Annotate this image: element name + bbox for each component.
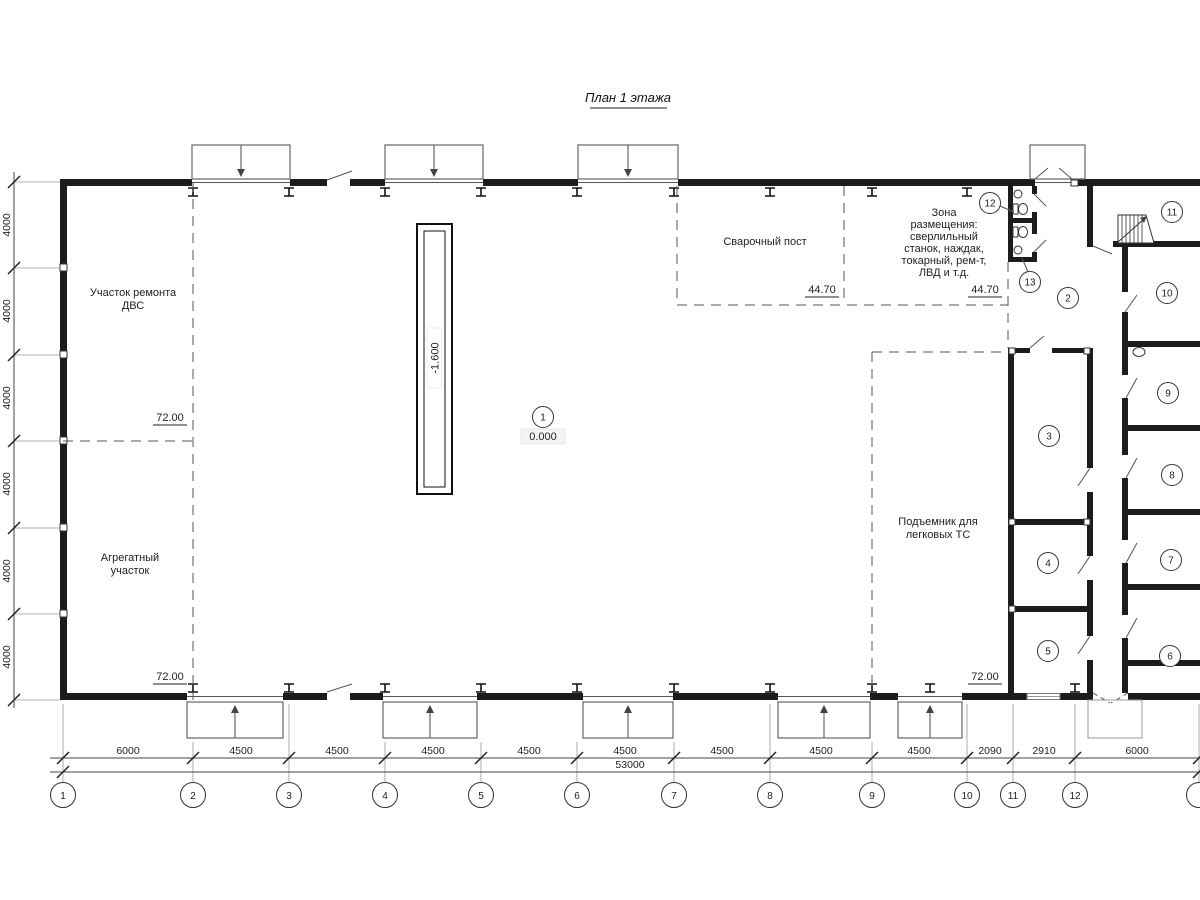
elevation-labels: 72.00 72.00 72.00 44.70 44.70 xyxy=(153,284,1002,684)
room-label-dvs2: ДВС xyxy=(122,300,144,312)
dim-left: 4000 xyxy=(1,386,13,410)
grid-extension-lines xyxy=(63,704,1199,783)
left-dimensions: 4000 4000 4000 4000 4000 4000 xyxy=(1,172,60,708)
dim-bottom: 4500 xyxy=(613,745,637,757)
dim-left: 4000 xyxy=(1,213,13,237)
room-mark: 5 xyxy=(1038,641,1059,662)
columns-top xyxy=(188,188,972,196)
grid-bubble: 4 xyxy=(373,783,398,808)
room-mark: 13 xyxy=(1020,258,1041,293)
elevation-4470-zone: 44.70 xyxy=(971,284,999,296)
svg-text:2: 2 xyxy=(190,791,196,802)
svg-text:12: 12 xyxy=(984,199,996,210)
dim-bottom: 6000 xyxy=(116,745,140,757)
dim-left: 4000 xyxy=(1,472,13,496)
dim-bottom: 4500 xyxy=(421,745,445,757)
stairs xyxy=(1118,215,1154,243)
floor-plan-sheet: План 1 этажа xyxy=(0,0,1200,900)
svg-text:7: 7 xyxy=(1168,556,1174,567)
svg-text:3: 3 xyxy=(286,791,292,802)
elevation-72-left-top: 72.00 xyxy=(156,412,184,424)
room-label-lift2: легковых ТС xyxy=(906,529,971,541)
svg-text:10: 10 xyxy=(1161,289,1173,300)
dim-left: 4000 xyxy=(1,645,13,669)
grid-bubble: 11 xyxy=(1001,783,1026,808)
svg-text:2: 2 xyxy=(1065,294,1071,305)
svg-text:4: 4 xyxy=(382,791,388,802)
room-mark: 6 xyxy=(1160,646,1181,667)
vestibule xyxy=(1030,145,1085,179)
dim-bottom: 4500 xyxy=(710,745,734,757)
dim-bottom: 4500 xyxy=(517,745,541,757)
svg-text:4: 4 xyxy=(1045,559,1051,570)
sink-icon xyxy=(1014,190,1022,198)
grid-bubble: 10 xyxy=(955,783,980,808)
interior-walls xyxy=(1008,186,1200,693)
room-label-weld: Сварочный пост xyxy=(723,236,806,248)
gate-symbols-bottom xyxy=(187,702,962,738)
floor-mark: 1 0.000 xyxy=(521,407,565,445)
svg-text:3: 3 xyxy=(1046,432,1052,443)
room-label-zone1: Зона xyxy=(932,207,958,219)
room-mark: 10 xyxy=(1157,283,1178,304)
room-label-dvs: Участок ремонта xyxy=(90,287,177,299)
dim-bottom: 2910 xyxy=(1032,745,1056,757)
room-label-zone5: токарный, рем-т, xyxy=(902,255,987,267)
dim-labels: 6000 4500 4500 4500 4500 4500 4500 4500 … xyxy=(116,745,1149,757)
grid-bubble: 1 xyxy=(51,783,76,808)
toilet-icon xyxy=(1013,204,1028,215)
svg-text:7: 7 xyxy=(671,791,677,802)
dim-bottom: 4500 xyxy=(325,745,349,757)
floor-plan-drawing: План 1 этажа xyxy=(0,0,1200,900)
svg-text:5: 5 xyxy=(1045,647,1051,658)
room-mark: 9 xyxy=(1158,383,1179,404)
dim-bottom: 2090 xyxy=(978,745,1002,757)
room-mark: 7 xyxy=(1161,550,1182,571)
grid-bubble-partial xyxy=(1187,783,1200,808)
dim-left: 4000 xyxy=(1,299,13,323)
window xyxy=(1027,694,1060,700)
inspection-pit: -1.600 xyxy=(417,224,452,494)
interior-doors xyxy=(1030,194,1137,654)
grid-bubble: 9 xyxy=(860,783,885,808)
room-label-zone3: сверлильный xyxy=(910,231,978,243)
grid-bubble: 7 xyxy=(662,783,687,808)
dim-left: 4000 xyxy=(1,559,13,583)
dim-bottom: 6000 xyxy=(1125,745,1149,757)
dim-bottom: 4500 xyxy=(907,745,931,757)
room-labels: Участок ремонта ДВС Агрегатный участок С… xyxy=(90,207,987,577)
elevation-4470-weld: 44.70 xyxy=(808,284,836,296)
elevation-72-left-bottom: 72.00 xyxy=(156,671,184,683)
svg-text:9: 9 xyxy=(869,791,875,802)
svg-text:8: 8 xyxy=(767,791,773,802)
svg-text:12: 12 xyxy=(1069,791,1081,802)
svg-text:5: 5 xyxy=(478,791,484,802)
svg-text:11: 11 xyxy=(1167,208,1178,219)
toilet-icon xyxy=(1013,227,1028,238)
room-mark: 8 xyxy=(1162,465,1183,486)
room-label-zone6: ЛВД и т.д. xyxy=(919,267,969,279)
exit-porch xyxy=(1088,700,1142,738)
dim-total: 53000 xyxy=(615,759,644,771)
dim-bottom: 4500 xyxy=(229,745,253,757)
sink-icon xyxy=(1014,246,1022,254)
grid-bubble: 6 xyxy=(565,783,590,808)
grid-bubble: 12 xyxy=(1063,783,1088,808)
grid-bubble: 8 xyxy=(758,783,783,808)
svg-text:9: 9 xyxy=(1165,389,1171,400)
elevation-0000: 0.000 xyxy=(529,431,557,443)
svg-text:8: 8 xyxy=(1169,471,1175,482)
pit-elevation-label: -1.600 xyxy=(430,342,442,373)
room-mark: 2 xyxy=(1058,288,1079,309)
sink-icon xyxy=(1133,348,1145,357)
room-mark: 3 xyxy=(1039,426,1060,447)
columns-bottom xyxy=(188,684,1080,692)
grid-bubble: 2 xyxy=(181,783,206,808)
grid-bubble: 5 xyxy=(469,783,494,808)
svg-text:6: 6 xyxy=(574,791,580,802)
svg-text:10: 10 xyxy=(961,791,973,802)
room-label-agg2: участок xyxy=(111,565,150,577)
room-mark: 4 xyxy=(1038,553,1059,574)
drawing-title: План 1 этажа xyxy=(585,90,671,105)
room-label-zone4: станок, наждак, xyxy=(904,243,984,255)
dim-bottom: 4500 xyxy=(809,745,833,757)
room-label-agg: Агрегатный xyxy=(101,552,159,564)
room-label-zone2: размещения: xyxy=(910,219,977,231)
svg-text:11: 11 xyxy=(1008,791,1019,802)
grid-bubbles: 1 2 3 4 5 6 7 8 9 10 11 12 xyxy=(51,783,1200,808)
svg-text:13: 13 xyxy=(1024,278,1036,289)
svg-text:1: 1 xyxy=(60,791,66,802)
grid-bubble: 3 xyxy=(277,783,302,808)
room-mark-1: 1 xyxy=(540,413,546,424)
room-label-lift: Подъемник для xyxy=(898,516,977,528)
bottom-dimensions: 6000 4500 4500 4500 4500 4500 4500 4500 … xyxy=(50,704,1200,808)
elevation-72-right: 72.00 xyxy=(971,671,999,683)
room-mark: 11 xyxy=(1162,202,1183,223)
gate-symbols-top xyxy=(192,145,678,179)
svg-text:6: 6 xyxy=(1167,652,1173,663)
